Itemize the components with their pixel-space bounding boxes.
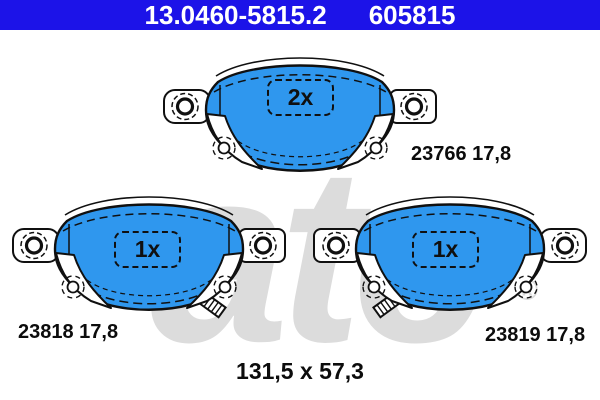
reference-number: 605815 [369, 0, 456, 30]
dimensions-label: 131,5 x 57,3 [0, 358, 600, 385]
part-number-label-top: 23766 17,8 [411, 143, 511, 166]
part-number-label-bottom-right: 23819 17,8 [485, 324, 585, 347]
catalog-number: 13.0460-5815.2 [145, 0, 327, 30]
mounting-ear-right [239, 229, 285, 262]
quantity-label: 1x [433, 236, 459, 263]
quantity-badge-bottom-left: 1x [114, 231, 181, 268]
quantity-badge-bottom-right: 1x [412, 231, 479, 268]
mounting-ear-right [314, 229, 360, 262]
quantity-label: 2x [288, 84, 314, 111]
brake-pad-illustration-top [162, 52, 438, 184]
part-number-label-bottom-left: 23818 17,8 [18, 321, 118, 344]
mounting-ear-left [13, 229, 59, 262]
quantity-badge-top: 2x [267, 79, 334, 116]
mounting-ear-right [390, 90, 436, 123]
mounting-ear-left [164, 90, 210, 123]
brake-pad-catalog-image: 13.0460-5815.2 605815 ate ® [0, 0, 600, 400]
quantity-label: 1x [135, 236, 161, 263]
header-bar: 13.0460-5815.2 605815 [0, 0, 600, 30]
mounting-ear-left [540, 229, 586, 262]
